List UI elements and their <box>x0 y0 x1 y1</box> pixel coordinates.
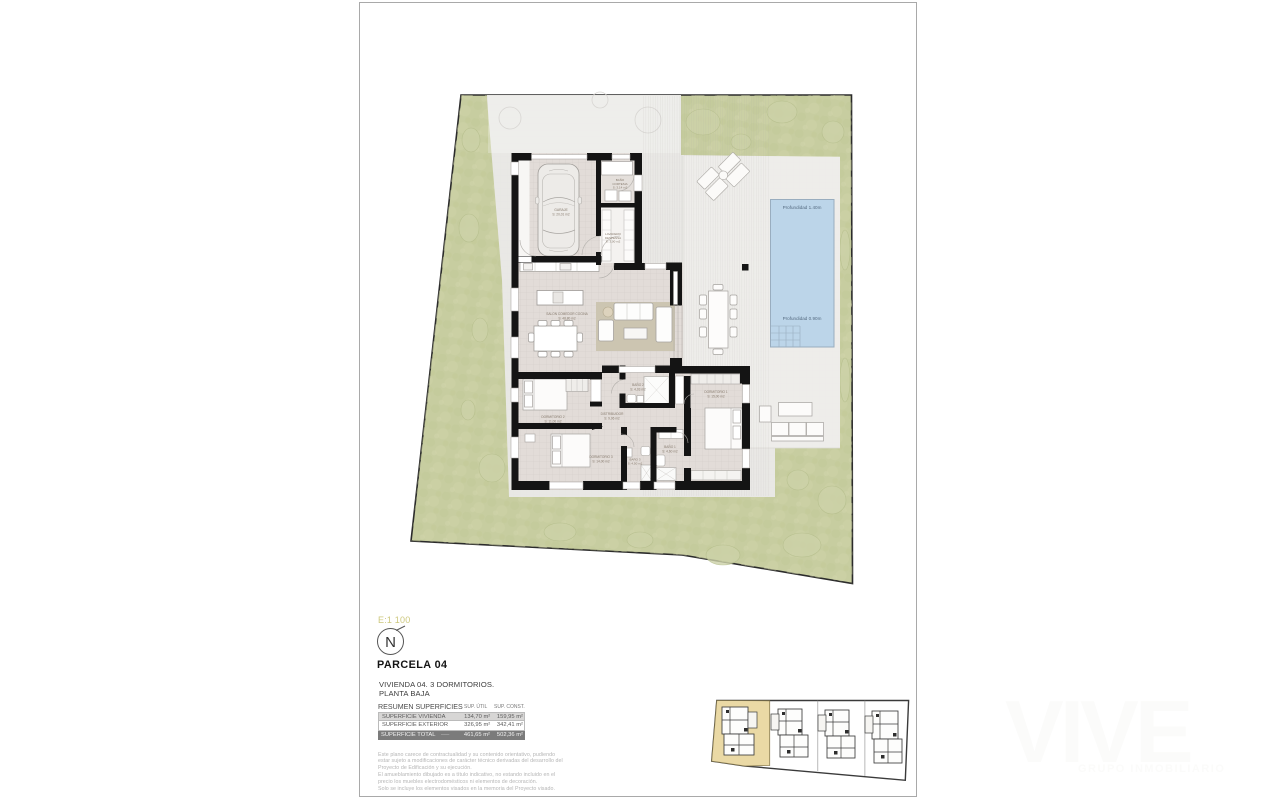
svg-text:S: 48,80 m2: S: 48,80 m2 <box>558 317 575 321</box>
svg-text:S: 4,60 m2: S: 4,60 m2 <box>662 450 678 454</box>
svg-text:S: 4,50 m2: S: 4,50 m2 <box>628 461 643 465</box>
svg-text:GRUPO INMOBILIARIO: GRUPO INMOBILIARIO <box>1078 763 1225 775</box>
svg-text:S: 14,00 m2: S: 14,00 m2 <box>592 460 609 464</box>
svg-text:GARAJE: GARAJE <box>554 208 568 212</box>
svg-text:S: 20,01 m2: S: 20,01 m2 <box>552 213 569 217</box>
svg-text:S: 15,00 m2: S: 15,00 m2 <box>707 395 724 399</box>
svg-text:DISTRIBUIDOR: DISTRIBUIDOR <box>601 412 625 416</box>
svg-text:S: 11,00 m2: S: 11,00 m2 <box>545 420 562 424</box>
svg-text:BAÑO 2: BAÑO 2 <box>632 382 644 387</box>
svg-text:S: 4,03 m2: S: 4,03 m2 <box>630 388 646 392</box>
svg-text:S: 9,06 m2: S: 9,06 m2 <box>604 417 620 421</box>
svg-text:SALON COMEDOR COCINA: SALON COMEDOR COCINA <box>546 312 588 316</box>
svg-text:BAÑO 1: BAÑO 1 <box>664 444 676 449</box>
svg-text:S: 3,14 m2: S: 3,14 m2 <box>613 186 628 190</box>
svg-text:N: N <box>385 634 396 651</box>
svg-text:DORMITORIO 2: DORMITORIO 2 <box>541 415 565 419</box>
svg-text:DORMITORIO 3: DORMITORIO 3 <box>589 455 613 459</box>
svg-text:S: 3,00 m2: S: 3,00 m2 <box>606 240 621 244</box>
svg-text:DORMITORIO 1: DORMITORIO 1 <box>704 390 728 394</box>
